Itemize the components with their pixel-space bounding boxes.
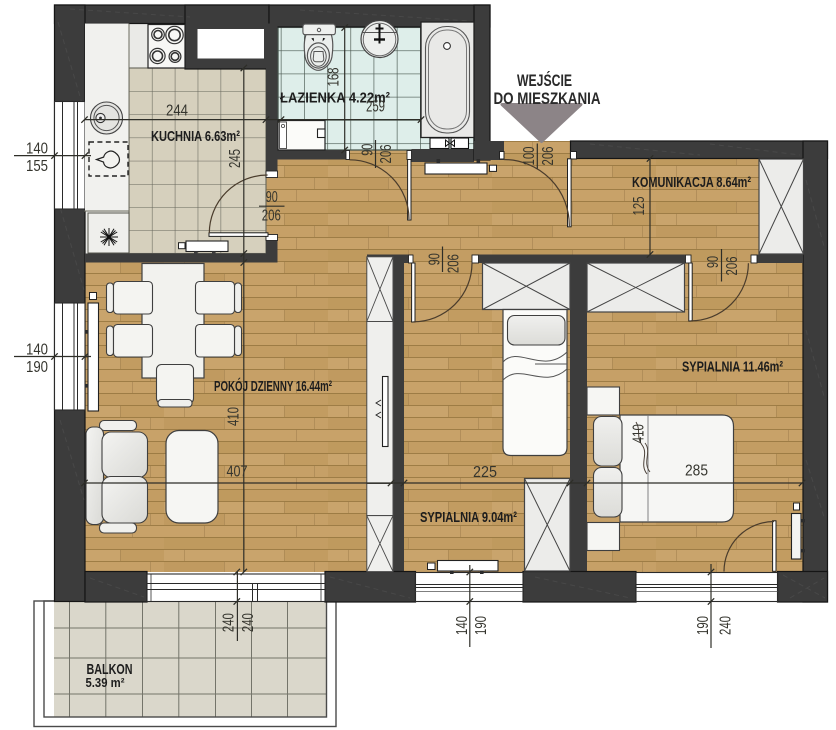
svg-text:190: 190 <box>26 359 48 376</box>
svg-text:225: 225 <box>473 464 497 481</box>
svg-text:240: 240 <box>221 613 238 632</box>
svg-text:168: 168 <box>326 68 343 87</box>
svg-text:KUCHNIA 6.63m²: KUCHNIA 6.63m² <box>151 128 240 145</box>
svg-text:KOMUNIKACJA 8.64m²: KOMUNIKACJA 8.64m² <box>632 174 751 191</box>
svg-text:90: 90 <box>705 256 722 268</box>
svg-text:90: 90 <box>360 144 377 156</box>
svg-text:155: 155 <box>26 158 48 175</box>
svg-text:DO MIESZKANIA: DO MIESZKANIA <box>494 90 601 108</box>
svg-text:SYPIALNIA 9.04m²: SYPIALNIA 9.04m² <box>420 509 517 526</box>
svg-text:206: 206 <box>378 145 395 164</box>
svg-text:140: 140 <box>26 342 48 359</box>
svg-text:206: 206 <box>724 257 741 276</box>
svg-text:190: 190 <box>695 616 712 635</box>
svg-text:90: 90 <box>266 189 278 206</box>
svg-text:285: 285 <box>685 463 708 480</box>
svg-text:240: 240 <box>240 613 257 632</box>
svg-text:125: 125 <box>631 197 648 216</box>
svg-text:5.39 m²: 5.39 m² <box>86 676 125 690</box>
svg-text:100: 100 <box>521 146 538 165</box>
svg-text:244: 244 <box>166 102 188 119</box>
svg-text:140: 140 <box>26 141 48 158</box>
svg-text:259: 259 <box>366 99 385 116</box>
svg-text:90: 90 <box>427 253 444 265</box>
svg-text:POKÓJ DZIENNY 16.44m²: POKÓJ DZIENNY 16.44m² <box>214 377 332 395</box>
svg-text:407: 407 <box>227 464 248 481</box>
svg-text:140: 140 <box>454 616 471 635</box>
svg-text:245: 245 <box>227 149 244 168</box>
svg-text:206: 206 <box>446 254 463 273</box>
svg-text:WEJŚCIE: WEJŚCIE <box>517 71 572 90</box>
svg-text:206: 206 <box>262 208 281 225</box>
svg-text:SYPIALNIA 11.46m²: SYPIALNIA 11.46m² <box>682 359 783 376</box>
svg-text:410: 410 <box>226 407 243 426</box>
svg-text:240: 240 <box>718 616 735 635</box>
svg-text:410: 410 <box>631 424 648 443</box>
svg-text:206: 206 <box>540 147 557 166</box>
svg-text:190: 190 <box>473 616 490 635</box>
